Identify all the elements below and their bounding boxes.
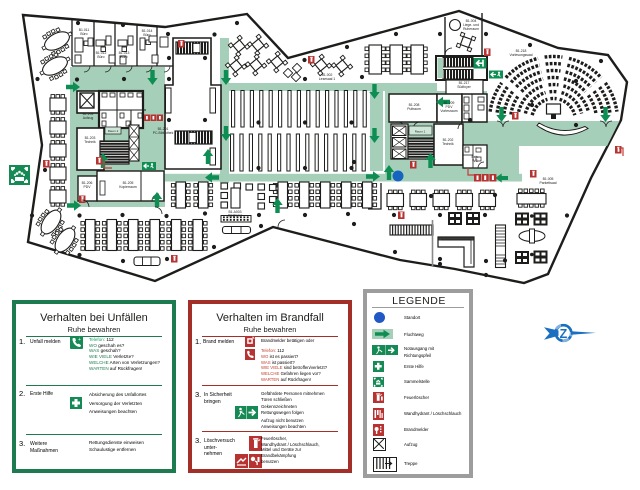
svg-text:Raum 2: Raum 2 xyxy=(108,129,119,133)
svg-text:Büro: Büro xyxy=(143,33,150,37)
svg-text:Lesesaal 1: Lesesaal 1 xyxy=(319,77,336,81)
svg-text:Vorlesungssaal: Vorlesungssaal xyxy=(510,53,533,57)
svg-text:Vorlesraum: Vorlesraum xyxy=(440,109,457,113)
svg-text:Pultraum: Pultraum xyxy=(407,107,421,111)
svg-text:Technik: Technik xyxy=(442,142,454,146)
svg-text:PDV: PDV xyxy=(84,185,92,189)
svg-text:WC: WC xyxy=(472,159,478,163)
svg-text:Technik: Technik xyxy=(84,140,96,144)
svg-text:PC-Bibliothek: PC-Bibliothek xyxy=(153,131,174,135)
svg-text:Kopierraum: Kopierraum xyxy=(119,185,137,189)
svg-text:Parkettsaal: Parkettsaal xyxy=(540,181,557,185)
svg-text:+: + xyxy=(78,337,81,343)
svg-text:Büro: Büro xyxy=(80,32,87,36)
svg-text:Z: Z xyxy=(560,327,568,341)
svg-text:Raum 1: Raum 1 xyxy=(415,130,426,134)
svg-text:Aufzug: Aufzug xyxy=(83,116,94,120)
svg-text:Büro: Büro xyxy=(120,55,127,59)
svg-text:Ruheraum: Ruheraum xyxy=(463,27,479,31)
svg-text:Büro: Büro xyxy=(97,55,104,59)
svg-text:Südfoyer: Südfoyer xyxy=(457,85,471,89)
svg-text:Bücherei: Bücherei xyxy=(228,214,242,218)
